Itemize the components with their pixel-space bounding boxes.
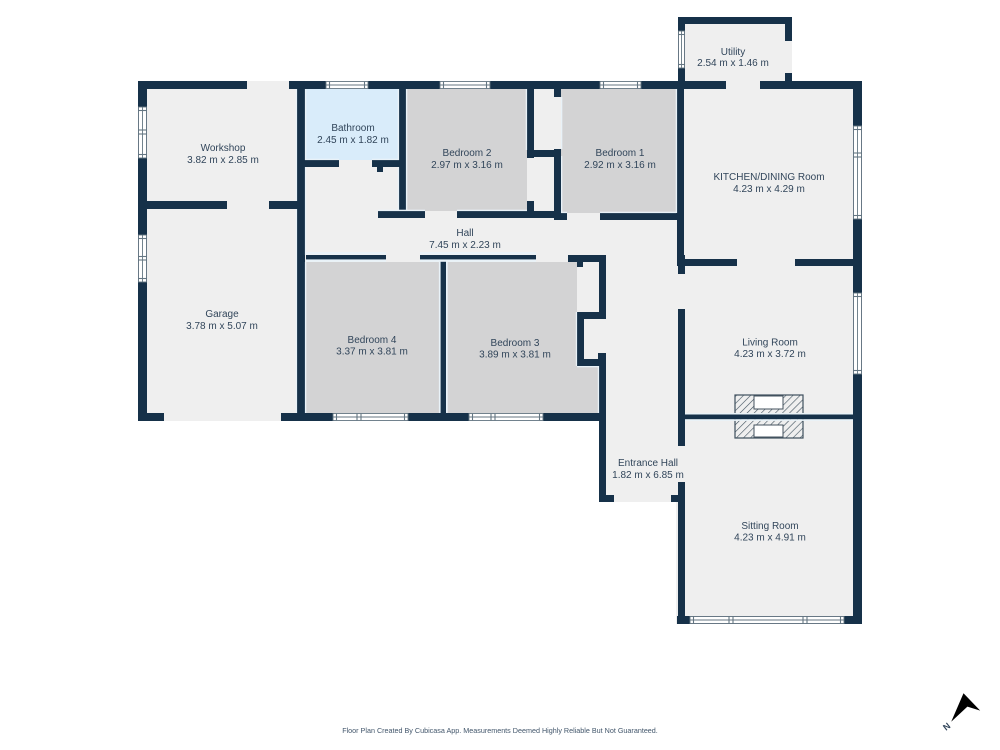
svg-text:2.45 m x 1.82 m: 2.45 m x 1.82 m bbox=[317, 135, 389, 146]
svg-text:Bedroom 1: Bedroom 1 bbox=[596, 148, 645, 159]
svg-text:2.97 m x 3.16 m: 2.97 m x 3.16 m bbox=[431, 160, 503, 171]
svg-text:Bedroom 2: Bedroom 2 bbox=[443, 148, 492, 159]
svg-text:4.23 m x 3.72 m: 4.23 m x 3.72 m bbox=[734, 349, 806, 360]
svg-text:Utility: Utility bbox=[721, 47, 745, 58]
svg-text:Floor Plan Created By Cubicasa: Floor Plan Created By Cubicasa App. Meas… bbox=[342, 726, 658, 735]
svg-text:3.78 m x 5.07 m: 3.78 m x 5.07 m bbox=[186, 321, 258, 332]
svg-text:2.92 m x 3.16 m: 2.92 m x 3.16 m bbox=[584, 160, 656, 171]
svg-text:Living Room: Living Room bbox=[742, 338, 798, 349]
svg-text:3.37 m x 3.81 m: 3.37 m x 3.81 m bbox=[336, 347, 408, 358]
svg-text:7.45 m x 2.23 m: 7.45 m x 2.23 m bbox=[429, 240, 501, 251]
svg-text:1.82 m x 6.85 m: 1.82 m x 6.85 m bbox=[612, 470, 684, 481]
svg-text:4.23 m x 4.91 m: 4.23 m x 4.91 m bbox=[734, 533, 806, 544]
svg-text:Bathroom: Bathroom bbox=[331, 123, 374, 134]
svg-text:Sitting Room: Sitting Room bbox=[741, 521, 798, 532]
svg-text:3.82 m x 2.85 m: 3.82 m x 2.85 m bbox=[187, 155, 259, 166]
svg-text:KITCHEN/DINING Room: KITCHEN/DINING Room bbox=[713, 172, 824, 183]
svg-text:Garage: Garage bbox=[205, 309, 239, 320]
svg-text:3.89 m x 3.81 m: 3.89 m x 3.81 m bbox=[479, 350, 551, 361]
svg-text:2.54 m x 1.46 m: 2.54 m x 1.46 m bbox=[697, 58, 769, 69]
svg-text:4.23 m x 4.29 m: 4.23 m x 4.29 m bbox=[733, 184, 805, 195]
svg-text:Hall: Hall bbox=[456, 228, 473, 239]
svg-text:Entrance Hall: Entrance Hall bbox=[618, 458, 678, 469]
svg-text:Bedroom 4: Bedroom 4 bbox=[348, 335, 397, 346]
svg-text:Bedroom 3: Bedroom 3 bbox=[491, 338, 540, 349]
svg-text:Workshop: Workshop bbox=[201, 143, 246, 154]
